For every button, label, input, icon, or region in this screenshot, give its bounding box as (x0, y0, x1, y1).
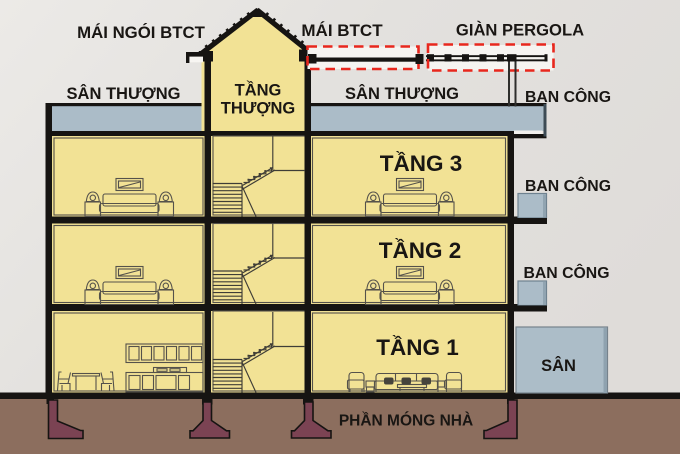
svg-text:BAN CÔNG: BAN CÔNG (523, 263, 609, 282)
svg-text:SÂN THƯỢNG: SÂN THƯỢNG (67, 84, 181, 103)
svg-text:MÁI BTCT: MÁI BTCT (301, 21, 383, 40)
svg-text:TẦNG 1: TẦNG 1 (376, 335, 459, 360)
svg-text:SÂN: SÂN (541, 356, 576, 375)
svg-text:THƯỢNG: THƯỢNG (221, 100, 296, 118)
svg-text:TẦNG: TẦNG (235, 81, 282, 100)
svg-text:SÂN THƯỢNG: SÂN THƯỢNG (345, 84, 459, 103)
svg-text:BAN CÔNG: BAN CÔNG (525, 176, 611, 195)
svg-text:TẦNG 2: TẦNG 2 (379, 238, 462, 263)
svg-text:GIÀN PERGOLA: GIÀN PERGOLA (456, 21, 584, 40)
svg-text:PHẦN MÓNG NHÀ: PHẦN MÓNG NHÀ (339, 412, 473, 430)
svg-text:BAN CÔNG: BAN CÔNG (525, 87, 611, 106)
svg-text:TẦNG 3: TẦNG 3 (380, 151, 463, 176)
svg-text:MÁI NGÓI BTCT: MÁI NGÓI BTCT (77, 23, 205, 42)
